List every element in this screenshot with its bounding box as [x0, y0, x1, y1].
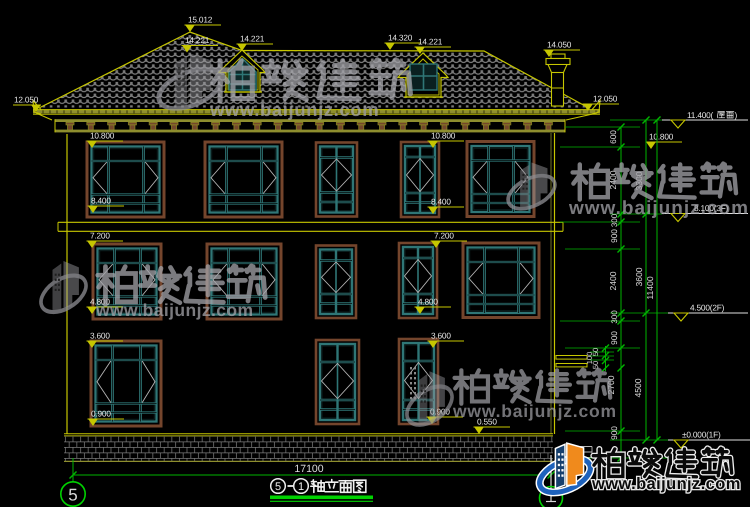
- svg-text:www.baijunjz.com: www.baijunjz.com: [95, 300, 253, 320]
- svg-text:www.baijunjz.com: www.baijunjz.com: [568, 198, 749, 219]
- svg-text:3600: 3600: [634, 267, 644, 286]
- svg-text:10.800: 10.800: [649, 132, 674, 142]
- svg-text:14.221: 14.221: [185, 35, 210, 45]
- svg-text:www.baijunjz.com: www.baijunjz.com: [209, 99, 379, 120]
- svg-text:17100: 17100: [294, 463, 323, 475]
- svg-text:14.221: 14.221: [240, 34, 265, 44]
- svg-text:900: 900: [609, 229, 619, 243]
- svg-text:14.050: 14.050: [547, 40, 572, 50]
- svg-text:8.400: 8.400: [431, 197, 451, 207]
- svg-text:4.500(2F): 4.500(2F): [690, 303, 725, 313]
- svg-text:): ): [735, 110, 738, 120]
- svg-text:10.800: 10.800: [431, 131, 456, 141]
- svg-text:12.050: 12.050: [14, 95, 39, 105]
- svg-text:5: 5: [68, 486, 77, 505]
- svg-text:www.baijunjz.com: www.baijunjz.com: [452, 401, 617, 421]
- svg-text:2400: 2400: [608, 271, 618, 290]
- svg-text:0.900: 0.900: [91, 409, 111, 419]
- svg-text:1: 1: [298, 481, 304, 493]
- svg-text:3.600: 3.600: [431, 331, 451, 341]
- svg-text:4500: 4500: [633, 378, 643, 397]
- svg-text:15.012: 15.012: [188, 15, 213, 25]
- svg-text:900: 900: [609, 426, 619, 440]
- svg-text:14.320: 14.320: [388, 33, 413, 43]
- svg-text:11.400(: 11.400(: [687, 110, 714, 120]
- svg-text:300: 300: [610, 310, 619, 324]
- svg-text:10.800: 10.800: [90, 131, 115, 141]
- svg-text:8.400: 8.400: [91, 196, 111, 206]
- svg-text:14.221: 14.221: [418, 37, 443, 47]
- svg-text:3.600: 3.600: [90, 331, 110, 341]
- svg-text:4.800: 4.800: [418, 297, 438, 307]
- svg-text:900: 900: [609, 331, 619, 345]
- svg-text:7.200: 7.200: [90, 231, 110, 241]
- svg-text:12.050: 12.050: [593, 94, 618, 104]
- svg-text:7.200: 7.200: [434, 231, 454, 241]
- svg-text:±0.000(1F): ±0.000(1F): [682, 430, 721, 440]
- svg-text:5: 5: [275, 481, 281, 493]
- svg-text:www.baijunjz.com: www.baijunjz.com: [591, 475, 741, 493]
- svg-text:11400: 11400: [645, 276, 655, 299]
- svg-text:600: 600: [608, 130, 618, 144]
